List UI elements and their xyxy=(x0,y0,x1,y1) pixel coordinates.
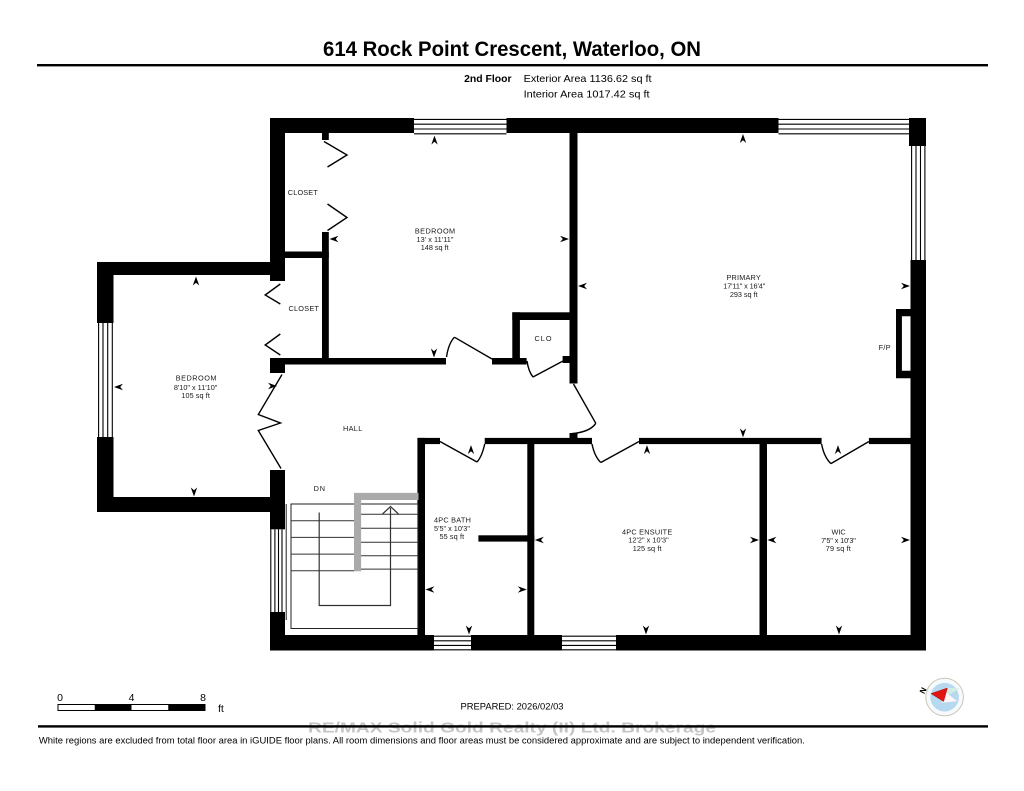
svg-text:4: 4 xyxy=(129,692,135,704)
svg-text:CLOSET: CLOSET xyxy=(289,304,320,313)
svg-text:2nd Floor: 2nd Floor xyxy=(464,74,511,85)
svg-text:BEDROOM: BEDROOM xyxy=(176,374,217,383)
svg-text:PREPARED: 2026/02/03: PREPARED: 2026/02/03 xyxy=(461,702,564,713)
svg-text:Exterior Area 1136.62 sq ft: Exterior Area 1136.62 sq ft xyxy=(524,74,652,85)
svg-text:8: 8 xyxy=(200,692,206,704)
svg-text:0: 0 xyxy=(57,692,63,704)
svg-text:125 sq ft: 125 sq ft xyxy=(633,544,662,553)
svg-text:CLOSET: CLOSET xyxy=(288,188,319,197)
svg-text:55 sq ft: 55 sq ft xyxy=(440,532,465,541)
svg-text:614 Rock Point Crescent, Water: 614 Rock Point Crescent, Waterloo, ON xyxy=(323,37,701,61)
svg-text:HALL: HALL xyxy=(343,424,362,433)
svg-text:ft: ft xyxy=(218,703,224,715)
svg-text:White regions are excluded fro: White regions are excluded from total fl… xyxy=(39,736,805,746)
svg-text:105 sq ft: 105 sq ft xyxy=(181,391,210,400)
svg-text:F/P: F/P xyxy=(879,343,891,352)
svg-text:DN: DN xyxy=(314,484,325,493)
svg-text:CLO: CLO xyxy=(535,334,552,343)
svg-text:RE/MAX Solid Gold Realty (II): RE/MAX Solid Gold Realty (II) Ltd. Broke… xyxy=(308,720,716,737)
svg-text:293 sq ft: 293 sq ft xyxy=(730,290,758,299)
svg-text:79 sq ft: 79 sq ft xyxy=(826,544,851,553)
svg-text:148 sq ft: 148 sq ft xyxy=(421,243,449,252)
svg-text:Interior Area 1017.42 sq ft: Interior Area 1017.42 sq ft xyxy=(524,90,650,101)
